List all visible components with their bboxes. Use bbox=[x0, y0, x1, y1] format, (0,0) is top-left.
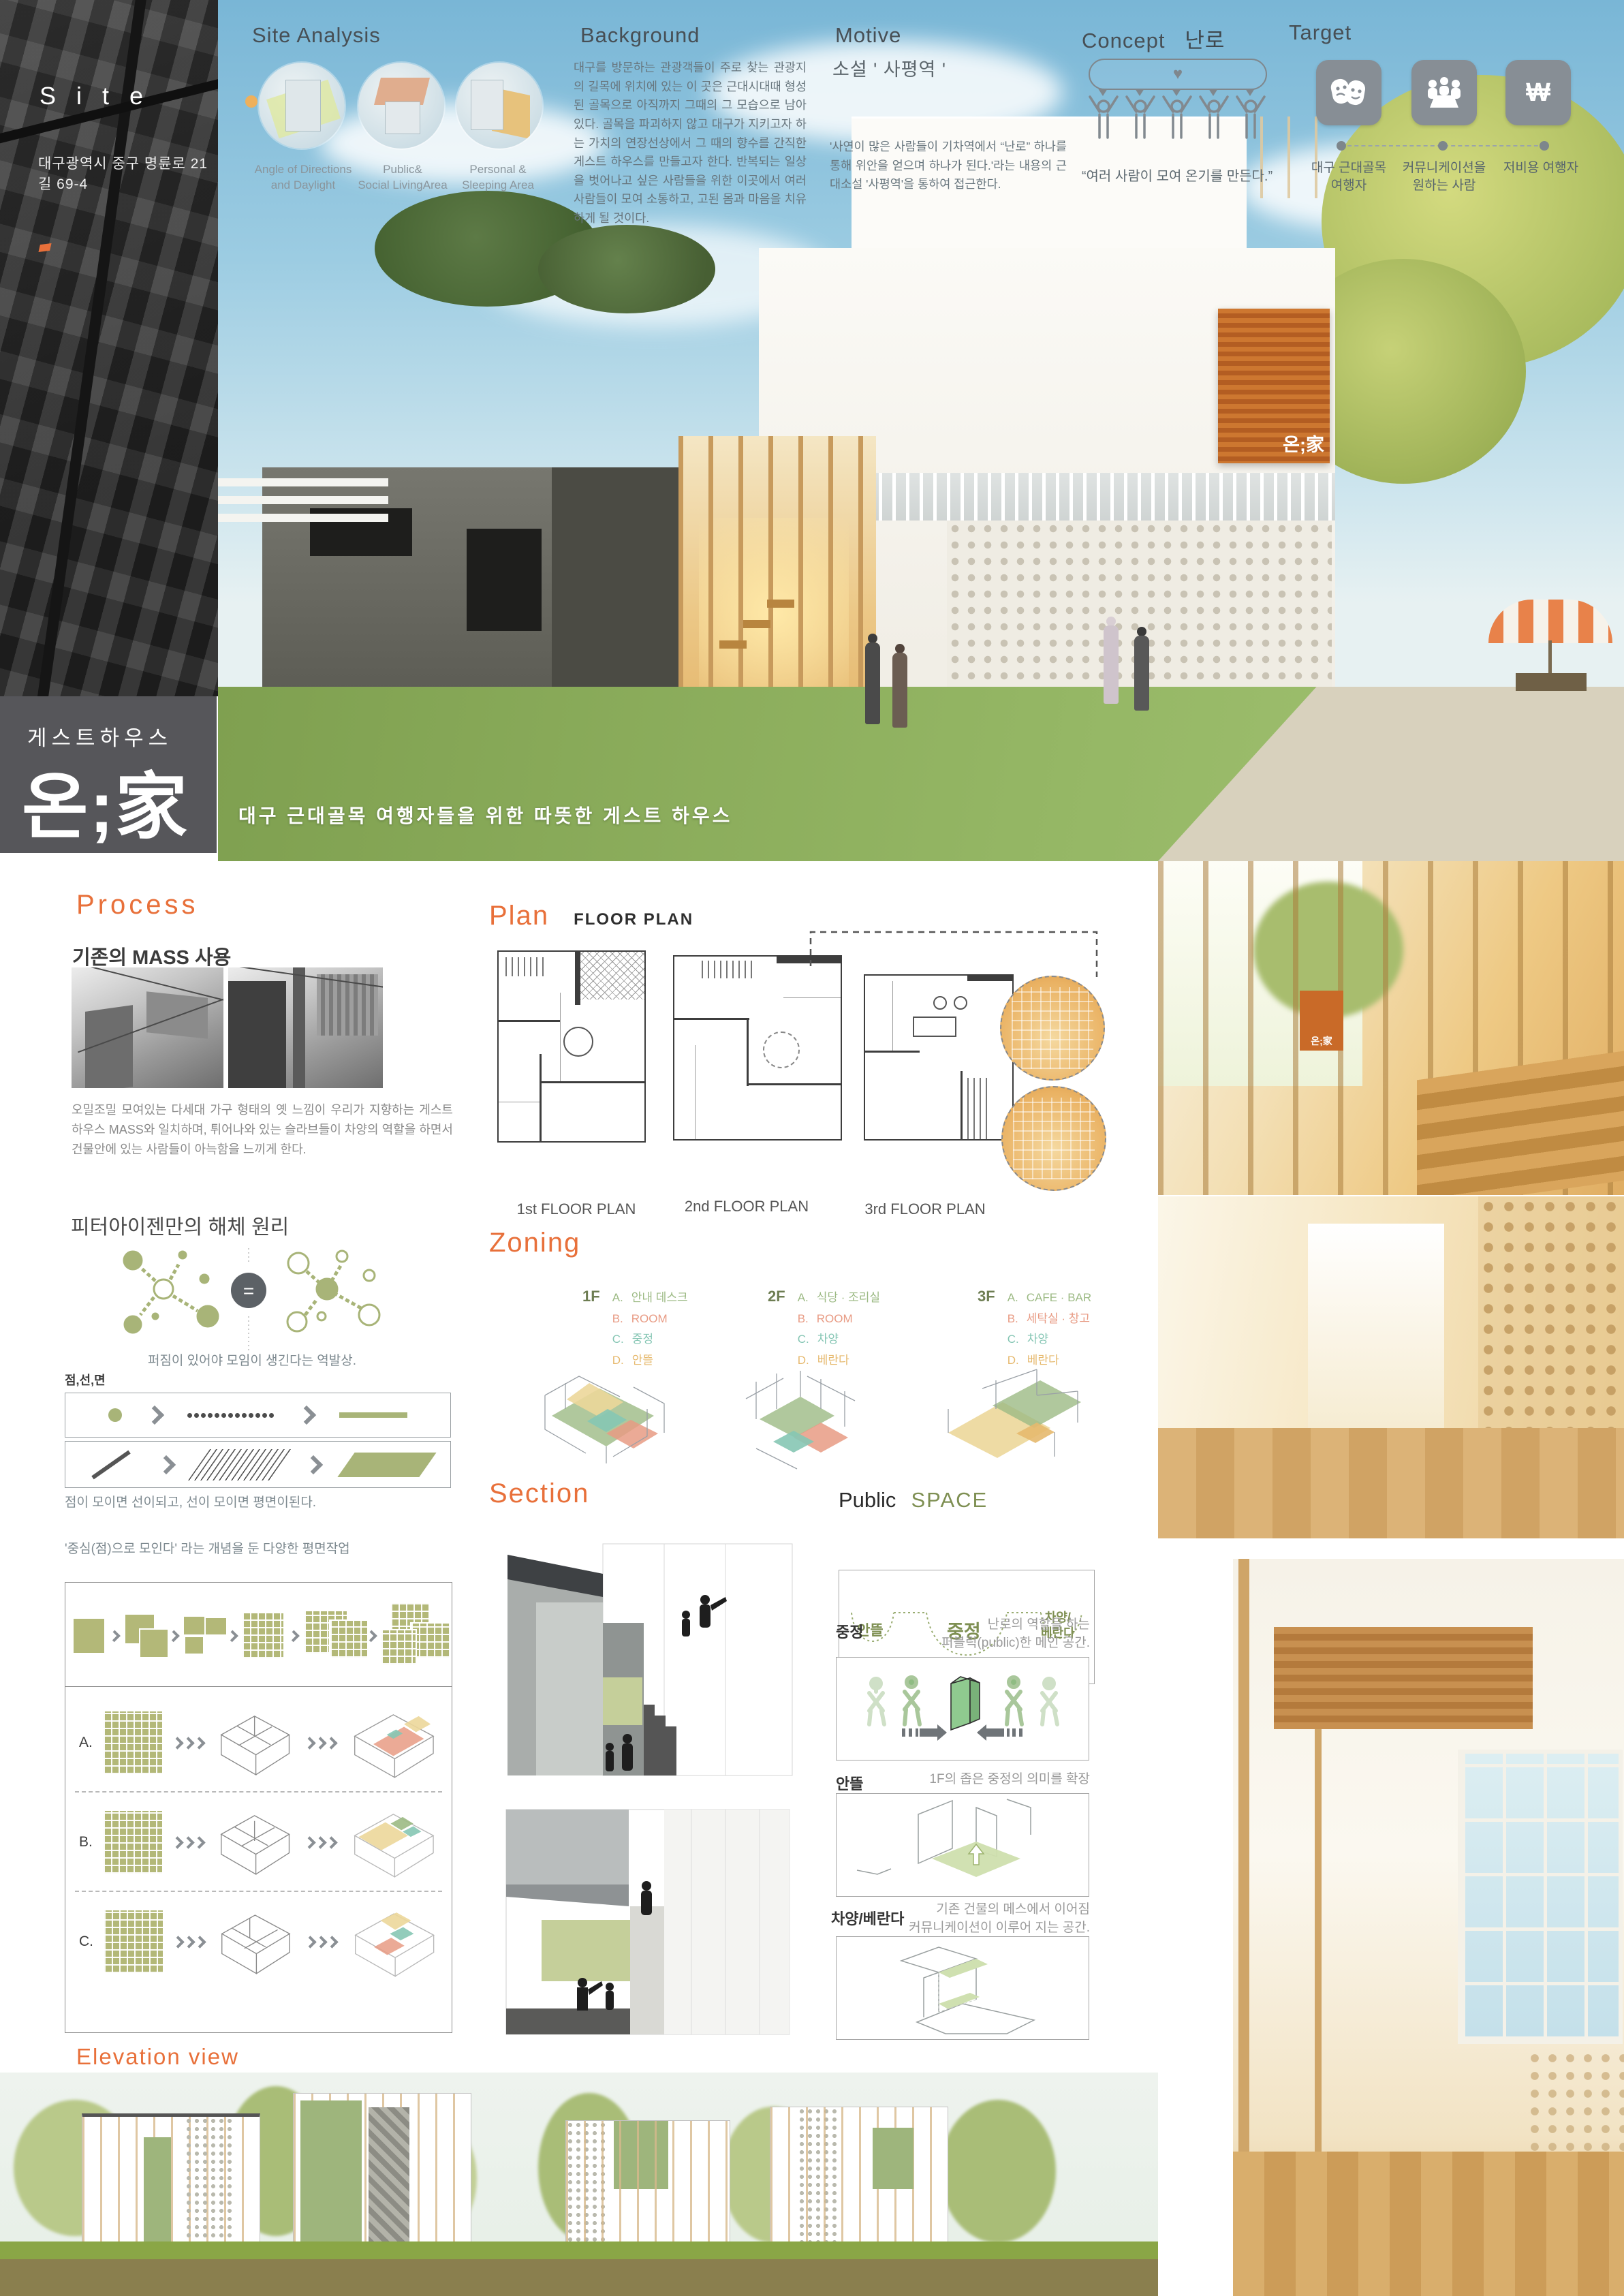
center-concept-caption: '중심(점)으로 모인다' 라는 개념을 둔 다양한 평면작업 bbox=[65, 1538, 350, 1557]
zoning-legend: A.CAFE · BAR B.세탁실 · 창고 C.차양 D.베란다 bbox=[1008, 1288, 1091, 1371]
annex-window bbox=[467, 529, 542, 631]
target-label: 저비용 여행자 bbox=[1480, 159, 1602, 177]
site-title: S i t e bbox=[40, 82, 150, 110]
point-to-line-diagram bbox=[65, 1393, 451, 1438]
target-connector bbox=[1341, 145, 1545, 146]
site-address: 대구광역시 중구 명륜로 21길 69-4 bbox=[38, 153, 218, 193]
legend-key: A. bbox=[612, 1288, 623, 1309]
stair-step bbox=[743, 620, 770, 628]
old-alley-photo bbox=[72, 967, 223, 1088]
eisenman-title: 피터아이젠만의 해체 원리 bbox=[71, 1210, 289, 1240]
tall-window bbox=[1458, 1750, 1623, 2044]
plan-table bbox=[563, 1027, 593, 1057]
row-divider bbox=[75, 1791, 442, 1793]
parasol bbox=[1488, 600, 1614, 695]
legend-label: 차양 bbox=[817, 1329, 839, 1350]
zoning-legend: A.안내 데스크 B.ROOM C.중정 D.안뜰 bbox=[612, 1288, 688, 1371]
concept-caption: “여러 사람이 모여 온기를 만든다.” bbox=[1075, 165, 1279, 185]
concept-title-text: Concept bbox=[1082, 29, 1165, 52]
colored-plan bbox=[347, 1905, 440, 1979]
wood-floor bbox=[1158, 1428, 1624, 1538]
plan-callout-ring bbox=[763, 1031, 800, 1068]
step-double-pattern bbox=[304, 1609, 362, 1663]
spread-gather-caption: 퍼짐이 있어야 모임이 생긴다는 역발상. bbox=[75, 1350, 429, 1369]
target-title: Target bbox=[1289, 20, 1352, 45]
legend-key: A. bbox=[1008, 1288, 1018, 1309]
sun-icon bbox=[245, 95, 257, 108]
people-figures bbox=[1084, 95, 1268, 158]
floor-name: 2F bbox=[768, 1288, 785, 1371]
elevation-title: Elevation view bbox=[76, 2044, 239, 2070]
massing-model bbox=[471, 80, 503, 129]
parasol-canopy bbox=[1488, 600, 1612, 643]
point-icon bbox=[108, 1408, 122, 1422]
floor-name: 3F bbox=[978, 1288, 995, 1371]
step-overlap-squares bbox=[125, 1615, 163, 1657]
pattern-tile bbox=[104, 1711, 162, 1774]
communication-table-icon bbox=[1411, 60, 1477, 125]
chevron-right-icon bbox=[109, 1630, 121, 1642]
triple-chevron-icon bbox=[306, 1938, 337, 1946]
heart-icon: ♥ bbox=[1173, 65, 1183, 84]
public-space-title-accent: SPACE bbox=[911, 1488, 988, 1512]
public-zone-highlight bbox=[374, 78, 430, 105]
floor-plan-1 bbox=[497, 950, 646, 1143]
row-key: B. bbox=[79, 1834, 93, 1850]
floor-plan-label: 1st FLOOR PLAN bbox=[501, 1200, 651, 1218]
legend-label: 식당 · 조리실 bbox=[817, 1288, 880, 1309]
zoning-legend: A.식당 · 조리실 B.ROOM C.차양 D.베란다 bbox=[798, 1288, 880, 1371]
chevron-right-icon bbox=[365, 1630, 377, 1642]
room-render-callout bbox=[1000, 976, 1105, 1081]
derivation-row: A. bbox=[79, 1703, 440, 1783]
awning-veranda-desc: 기존 건물의 메스에서 이어짐 커뮤니케이션이 이루어 지는 공간. bbox=[892, 1901, 1090, 1937]
site-analysis-label: Angle of Directions and Daylight bbox=[245, 162, 361, 193]
awning-veranda-diagram bbox=[836, 1936, 1089, 2040]
white-fence bbox=[218, 478, 388, 529]
legend-label: 안내 데스크 bbox=[631, 1288, 688, 1309]
end-wall-light bbox=[1308, 1224, 1444, 1428]
concept-speech-bubble: ♥ bbox=[1089, 59, 1267, 90]
legend-label: ROOM bbox=[631, 1309, 668, 1330]
won-glyph: ₩ bbox=[1526, 78, 1550, 108]
interior-sign-text: 온;家 bbox=[1311, 1034, 1332, 1048]
row-key: A. bbox=[79, 1735, 93, 1751]
colored-plan bbox=[347, 1706, 440, 1780]
plan-transformation-panel: A. B. bbox=[65, 1582, 452, 2033]
innercourt-desc: 1F의 좁은 중정의 의미를 확장 bbox=[892, 1771, 1090, 1789]
derivation-row: B. bbox=[79, 1802, 440, 1882]
chevron-right-icon bbox=[168, 1630, 180, 1642]
legend-key: B. bbox=[798, 1309, 809, 1330]
site-analysis-diagram-personal bbox=[456, 63, 542, 149]
derivation-row: C. bbox=[79, 1902, 440, 1982]
point-line-caption: 점이 모이면 선이되고, 선이 모이면 평면이된다. bbox=[65, 1492, 316, 1510]
elevation-soil-band bbox=[0, 2259, 1158, 2296]
step-fret-pattern bbox=[243, 1613, 283, 1658]
triple-chevron-icon bbox=[174, 1938, 204, 1946]
site-analysis-title: Site Analysis bbox=[252, 23, 381, 48]
elevation-tree bbox=[940, 2100, 1056, 2243]
legend-key: C. bbox=[1008, 1329, 1019, 1350]
interior-render-corridor bbox=[1158, 1196, 1624, 1538]
hatched-lines-icon bbox=[187, 1449, 291, 1480]
mass-wireframe bbox=[215, 1807, 294, 1878]
line-icon bbox=[339, 1412, 407, 1418]
legend-key: B. bbox=[1008, 1309, 1018, 1330]
background-body: 대구를 방문하는 관광객들이 주로 찾는 관광지의 길목에 위치에 있는 이 곳… bbox=[574, 59, 807, 228]
site-analysis-diagram-daylight bbox=[259, 63, 345, 149]
line-icon bbox=[91, 1450, 131, 1479]
row-divider bbox=[75, 1891, 442, 1892]
room-render-callout bbox=[1001, 1086, 1106, 1191]
section-title: Section bbox=[489, 1478, 589, 1509]
plan-subtitle: FLOOR PLAN bbox=[574, 910, 693, 929]
elevation-ground bbox=[0, 2241, 1158, 2259]
brand-logo: 온;家 bbox=[22, 748, 189, 853]
interior-render-stair: 온;家 bbox=[1158, 861, 1624, 1195]
courtyard-desc: 난로의 역할을 하는 퍼블릭(public)한 메인 공간. bbox=[892, 1616, 1090, 1652]
theater-masks-icon bbox=[1316, 60, 1381, 125]
site-analysis-label: Personal & Sleeping Area bbox=[440, 162, 556, 193]
chevron-right-icon bbox=[156, 1455, 175, 1474]
triple-chevron-icon bbox=[173, 1838, 204, 1847]
building-sign-text: 온;家 bbox=[1283, 430, 1324, 456]
picnic-table bbox=[1516, 673, 1587, 691]
brand-category: 게스트하우스 bbox=[27, 721, 172, 751]
massing-model bbox=[286, 80, 320, 131]
motive-subtitle: 소설 ' 사평역 ' bbox=[832, 55, 946, 81]
elevation-facade bbox=[770, 2107, 948, 2244]
elevation-facade bbox=[293, 2093, 471, 2244]
svg-text:=: = bbox=[243, 1280, 254, 1301]
legend-key: C. bbox=[798, 1329, 809, 1350]
elevation-facade bbox=[82, 2113, 260, 2247]
point-line-plane-label: 점,선,면 bbox=[65, 1371, 106, 1389]
wood-floor bbox=[1233, 2152, 1624, 2296]
process-subtitle: 기존의 MASS 사용 bbox=[72, 942, 231, 970]
elevation-stair bbox=[369, 2107, 409, 2244]
interior-signboard: 온;家 bbox=[1300, 991, 1343, 1051]
chevron-right-icon bbox=[145, 1406, 164, 1425]
tree bbox=[538, 225, 715, 313]
motive-body: '사연이 많은 사람들이 기차역에서 “난로” 하나를 통해 위안을 얻으며 하… bbox=[830, 138, 1067, 194]
stair-step bbox=[719, 640, 747, 649]
legend-label: ROOM bbox=[817, 1309, 853, 1330]
line-to-plane-diagram bbox=[65, 1441, 451, 1488]
public-space-title: Public bbox=[839, 1488, 896, 1512]
mass-wireframe bbox=[215, 1906, 295, 1977]
zoning-axon-3f bbox=[935, 1368, 1098, 1470]
won-currency-icon: ₩ bbox=[1505, 60, 1571, 125]
zoning-floor-3f: 3F A.CAFE · BAR B.세탁실 · 창고 C.차양 D.베란다 bbox=[978, 1288, 1091, 1371]
step-solid-square bbox=[74, 1619, 104, 1653]
transformation-sequence bbox=[74, 1602, 443, 1670]
floor-plan-label: 3rd FLOOR PLAN bbox=[850, 1200, 1000, 1218]
panel-divider bbox=[65, 1686, 452, 1687]
triple-chevron-icon bbox=[305, 1739, 336, 1748]
dotted-line-icon bbox=[187, 1413, 274, 1418]
legend-key: A. bbox=[798, 1288, 809, 1309]
stair-step bbox=[767, 600, 794, 608]
floor-plan-label: 2nd FLOOR PLAN bbox=[672, 1198, 822, 1215]
legend-label: 차양 bbox=[1027, 1329, 1048, 1350]
concept-keyword: 난로 bbox=[1185, 29, 1225, 52]
plan-counter bbox=[913, 1017, 956, 1037]
floor-name: 1F bbox=[582, 1288, 600, 1371]
massing-model bbox=[386, 102, 420, 134]
courtyard-label: 중정 bbox=[836, 1620, 863, 1642]
chevron-right-icon bbox=[226, 1630, 238, 1642]
process-title: Process bbox=[76, 890, 199, 920]
chevron-right-icon bbox=[303, 1455, 322, 1474]
brand-panel: 게스트하우스 온;家 bbox=[0, 696, 217, 853]
legend-key: C. bbox=[612, 1329, 624, 1350]
concept-title: Concept 난로 bbox=[1082, 23, 1225, 54]
triple-chevron-icon bbox=[305, 1838, 336, 1847]
courtyard-diagram bbox=[836, 1657, 1089, 1760]
step-final-pattern bbox=[381, 1603, 443, 1669]
legend-label: 세탁실 · 창고 bbox=[1027, 1309, 1090, 1330]
spread-gather-diagram: = bbox=[102, 1248, 395, 1350]
zoning-floor-1f: 1F A.안내 데스크 B.ROOM C.중정 D.안뜰 bbox=[582, 1288, 688, 1371]
innercourt-diagram bbox=[836, 1793, 1089, 1897]
process-body: 오밀조밀 모여있는 다세대 가구 형태의 옛 느낌이 우리가 지향하는 게스트 … bbox=[72, 1100, 453, 1159]
motive-title: Motive bbox=[835, 23, 901, 48]
elevation-facade bbox=[565, 2120, 730, 2244]
section-drawing-2 bbox=[501, 1804, 795, 2039]
tagline: 대구 근대골목 여행자들을 위한 따뜻한 게스트 하우스 bbox=[238, 801, 852, 828]
legend-key: B. bbox=[612, 1309, 623, 1330]
site-map-panel: S i t e 대구광역시 중구 명륜로 21길 69-4 bbox=[0, 0, 218, 696]
pattern-tile bbox=[104, 1910, 163, 1973]
step-l-shape bbox=[184, 1617, 222, 1655]
public-space-header: Public SPACE bbox=[839, 1488, 988, 1512]
section-drawing-1 bbox=[501, 1534, 795, 1780]
row-key: C. bbox=[79, 1934, 93, 1950]
legend-label: CAFE · BAR bbox=[1027, 1288, 1091, 1309]
presentation-board: S i t e 대구광역시 중구 명륜로 21길 69-4 게스트하우스 온;家… bbox=[0, 0, 1624, 2296]
elevation-drawing bbox=[0, 2073, 1158, 2296]
chevron-right-icon bbox=[288, 1630, 300, 1642]
hero-render: 온;家 bbox=[218, 0, 1624, 861]
wood-pillar bbox=[1315, 1729, 1322, 2152]
legend-label: 중정 bbox=[632, 1329, 653, 1350]
pattern-tile bbox=[104, 1811, 162, 1874]
zoning-axon-2f bbox=[719, 1368, 875, 1470]
interior-render-void bbox=[1233, 1559, 1624, 2296]
innercourt-label: 안뜰 bbox=[836, 1772, 863, 1794]
old-alley-photo bbox=[228, 967, 383, 1088]
wood-balcony bbox=[1274, 1627, 1533, 1729]
plan-title: Plan bbox=[489, 901, 549, 931]
zoning-floor-2f: 2F A.식당 · 조리실 B.ROOM C.차양 D.베란다 bbox=[768, 1288, 880, 1371]
chevron-right-icon bbox=[297, 1406, 316, 1425]
zoning-axon-1f bbox=[525, 1368, 681, 1470]
mass-wireframe bbox=[215, 1707, 294, 1778]
zoning-title: Zoning bbox=[489, 1228, 580, 1258]
background-title: Background bbox=[580, 23, 700, 48]
building-wood-signboard: 온;家 bbox=[1218, 309, 1330, 463]
site-analysis-diagram-public bbox=[358, 63, 444, 149]
colored-plan bbox=[347, 1805, 440, 1879]
triple-chevron-icon bbox=[173, 1739, 204, 1748]
plane-icon bbox=[337, 1453, 436, 1477]
plan-header: Plan FLOOR PLAN bbox=[489, 901, 693, 931]
